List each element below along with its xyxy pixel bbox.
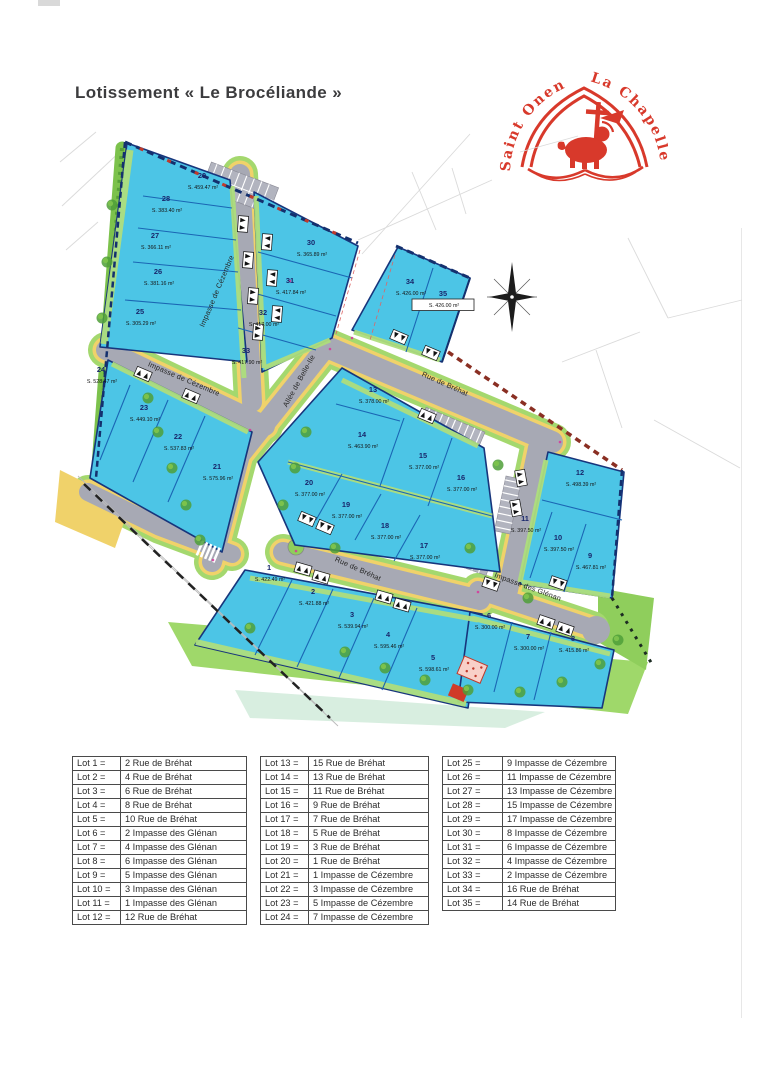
lot-address-cell: 4 Impasse des Glénan: [121, 841, 247, 855]
lot-address-cell: 7 Rue de Bréhat: [309, 813, 429, 827]
lot-number-cell: Lot 21 =: [261, 869, 309, 883]
lot-address-cell: 11 Rue de Bréhat: [309, 785, 429, 799]
svg-text:6: 6: [487, 611, 491, 620]
lot-address-cell: 2 Impasse de Cézembre: [503, 869, 616, 883]
svg-text:S. 467.81 m²: S. 467.81 m²: [576, 565, 607, 571]
svg-text:S. 381.16 m²: S. 381.16 m²: [144, 281, 175, 287]
lot-address-cell: 8 Rue de Bréhat: [121, 799, 247, 813]
svg-text:S. 539.94 m²: S. 539.94 m²: [338, 624, 369, 630]
lot-table-row: Lot 20 =1 Rue de Bréhat: [261, 855, 429, 869]
svg-text:S. 598.61 m²: S. 598.61 m²: [419, 667, 450, 673]
svg-text:S. 365.89 m²: S. 365.89 m²: [297, 252, 328, 258]
lot-table-row: Lot 24 =7 Impasse de Cézembre: [261, 911, 429, 925]
svg-text:34: 34: [406, 277, 415, 286]
svg-text:21: 21: [213, 462, 221, 471]
lot-table-row: Lot 11 =1 Impasse des Glénan: [73, 897, 247, 911]
page-title: Lotissement « Le Brocéliande »: [75, 83, 342, 103]
svg-text:S. 449.10 m²: S. 449.10 m²: [130, 417, 161, 423]
lot-address-table-3: Lot 25 =9 Impasse de CézembreLot 26 =11 …: [442, 756, 616, 911]
lot-address-cell: 6 Impasse de Cézembre: [503, 841, 616, 855]
lot-table-row: Lot 28 =15 Impasse de Cézembre: [443, 799, 616, 813]
svg-text:S. 426.00 m²: S. 426.00 m²: [396, 291, 427, 297]
lot-number-cell: Lot 33 =: [443, 869, 503, 883]
lot-address-cell: 15 Rue de Bréhat: [309, 757, 429, 771]
lot-table-row: Lot 29 =17 Impasse de Cézembre: [443, 813, 616, 827]
lot-table-row: Lot 35 =14 Rue de Bréhat: [443, 897, 616, 911]
lot-number-cell: Lot 26 =: [443, 771, 503, 785]
svg-text:28: 28: [162, 194, 170, 203]
svg-text:23: 23: [140, 403, 148, 412]
lot-table-row: Lot 7 =4 Impasse des Glénan: [73, 841, 247, 855]
lot-address-tables: Lot 1 =2 Rue de BréhatLot 2 =4 Rue de Br…: [72, 756, 616, 925]
svg-text:S. 397.50 m²: S. 397.50 m²: [511, 528, 542, 534]
svg-text:18: 18: [381, 521, 389, 530]
svg-text:S. 366.11 m²: S. 366.11 m²: [141, 245, 171, 251]
lot-number-cell: Lot 17 =: [261, 813, 309, 827]
lot-number-cell: Lot 23 =: [261, 897, 309, 911]
lot-table-row: Lot 21 =1 Impasse de Cézembre: [261, 869, 429, 883]
lot-number-cell: Lot 11 =: [73, 897, 121, 911]
svg-text:17: 17: [420, 541, 428, 550]
lot-number-cell: Lot 22 =: [261, 883, 309, 897]
lot-number-cell: Lot 24 =: [261, 911, 309, 925]
lot-address-cell: 3 Rue de Bréhat: [309, 841, 429, 855]
svg-text:11: 11: [521, 514, 529, 523]
svg-text:14: 14: [358, 430, 367, 439]
lot-number-cell: Lot 15 =: [261, 785, 309, 799]
lot-table-row: Lot 2 =4 Rue de Bréhat: [73, 771, 247, 785]
lot-address-cell: 5 Rue de Bréhat: [309, 827, 429, 841]
lot-address-cell: 2 Impasse des Glénan: [121, 827, 247, 841]
svg-text:S. 383.40 m²: S. 383.40 m²: [152, 208, 183, 214]
lot-table-row: Lot 32 =4 Impasse de Cézembre: [443, 855, 616, 869]
lot-address-cell: 2 Rue de Bréhat: [121, 757, 247, 771]
lot-number-cell: Lot 5 =: [73, 813, 121, 827]
lot-address-cell: 4 Rue de Bréhat: [121, 771, 247, 785]
lot-table-row: Lot 4 =8 Rue de Bréhat: [73, 799, 247, 813]
lot-number-cell: Lot 31 =: [443, 841, 503, 855]
lot-table-row: Lot 25 =9 Impasse de Cézembre: [443, 757, 616, 771]
svg-text:32: 32: [259, 308, 267, 317]
lot-table-row: Lot 23 =5 Impasse de Cézembre: [261, 897, 429, 911]
svg-text:19: 19: [342, 500, 350, 509]
svg-text:S. 537.83 m²: S. 537.83 m²: [164, 446, 195, 452]
lot-address-cell: 14 Rue de Bréhat: [503, 897, 616, 911]
svg-text:29: 29: [198, 171, 206, 180]
site-plan: Impasse de CézembreImpasse de CézembreAl…: [0, 116, 763, 750]
lot-number-cell: Lot 18 =: [261, 827, 309, 841]
svg-text:33: 33: [242, 346, 250, 355]
lot-number-cell: Lot 25 =: [443, 757, 503, 771]
svg-text:S. 378.00 m²: S. 378.00 m²: [359, 399, 390, 405]
lot-address-cell: 10 Rue de Bréhat: [121, 813, 247, 827]
svg-text:12: 12: [576, 468, 584, 477]
svg-text:27: 27: [151, 231, 159, 240]
lot-number-cell: Lot 6 =: [73, 827, 121, 841]
svg-text:S. 377.00 m²: S. 377.00 m²: [447, 487, 478, 493]
lot-table-row: Lot 15 =11 Rue de Bréhat: [261, 785, 429, 799]
svg-text:3: 3: [350, 610, 354, 619]
lot-address-cell: 11 Impasse de Cézembre: [503, 771, 616, 785]
scan-artifact: [38, 0, 60, 6]
lot-table-row: Lot 18 =5 Rue de Bréhat: [261, 827, 429, 841]
svg-text:S. 300.00 m²: S. 300.00 m²: [514, 646, 545, 652]
scanned-document-page: Lotissement « Le Brocéliande »: [0, 0, 763, 1080]
lot-number-cell: Lot 10 =: [73, 883, 121, 897]
lot-number-cell: Lot 4 =: [73, 799, 121, 813]
svg-text:13: 13: [369, 385, 377, 394]
svg-text:S. 377.00 m²: S. 377.00 m²: [410, 555, 441, 561]
svg-text:20: 20: [305, 478, 313, 487]
lot-address-cell: 16 Rue de Bréhat: [503, 883, 616, 897]
svg-text:S. 528.47 m²: S. 528.47 m²: [87, 379, 118, 385]
lot-table-row: Lot 17 =7 Rue de Bréhat: [261, 813, 429, 827]
svg-text:S. 377.00 m²: S. 377.00 m²: [409, 465, 440, 471]
svg-text:25: 25: [136, 307, 144, 316]
svg-text:S. 415.86 m²: S. 415.86 m²: [559, 648, 590, 654]
lot-address-cell: 4 Impasse de Cézembre: [503, 855, 616, 869]
svg-text:S. 426.00 m²: S. 426.00 m²: [429, 303, 460, 309]
lot-table-row: Lot 1 =2 Rue de Bréhat: [73, 757, 247, 771]
svg-text:S. 397.50 m²: S. 397.50 m²: [544, 547, 575, 553]
lot-number-cell: Lot 34 =: [443, 883, 503, 897]
compass-rose-icon: [487, 262, 537, 332]
lot-address-cell: 15 Impasse de Cézembre: [503, 799, 616, 813]
lot-table-row: Lot 6 =2 Impasse des Glénan: [73, 827, 247, 841]
lot-address-cell: 12 Rue de Bréhat: [121, 911, 247, 925]
lot-table-row: Lot 27 =13 Impasse de Cézembre: [443, 785, 616, 799]
svg-text:30: 30: [307, 238, 315, 247]
svg-text:S. 498.39 m²: S. 498.39 m²: [566, 482, 597, 488]
svg-text:1: 1: [267, 563, 271, 572]
svg-text:7: 7: [526, 632, 530, 641]
lot-address-cell: 1 Impasse des Glénan: [121, 897, 247, 911]
svg-text:8: 8: [571, 634, 575, 643]
lot-table-row: Lot 3 =6 Rue de Bréhat: [73, 785, 247, 799]
svg-text:S. 463.90 m²: S. 463.90 m²: [348, 444, 379, 450]
svg-text:22: 22: [174, 432, 182, 441]
lot-table-row: Lot 34 =16 Rue de Bréhat: [443, 883, 616, 897]
lot-address-cell: 1 Rue de Bréhat: [309, 855, 429, 869]
svg-text:S. 422.49 m²: S. 422.49 m²: [255, 577, 286, 583]
svg-text:S. 417.90 m²: S. 417.90 m²: [232, 360, 263, 366]
lot-number-cell: Lot 30 =: [443, 827, 503, 841]
lot-number-cell: Lot 28 =: [443, 799, 503, 813]
lot-number-cell: Lot 19 =: [261, 841, 309, 855]
lot-table-row: Lot 19 =3 Rue de Bréhat: [261, 841, 429, 855]
lot-address-cell: 6 Rue de Bréhat: [121, 785, 247, 799]
svg-text:S. 377.00 m²: S. 377.00 m²: [371, 535, 402, 541]
svg-text:24: 24: [97, 365, 106, 374]
lot-address-cell: 5 Impasse des Glénan: [121, 869, 247, 883]
svg-text:S. 377.00 m²: S. 377.00 m²: [295, 492, 326, 498]
svg-text:S. 575.96 m²: S. 575.96 m²: [203, 476, 234, 482]
lot-number-cell: Lot 14 =: [261, 771, 309, 785]
lot-number-cell: Lot 3 =: [73, 785, 121, 799]
lot-address-cell: 17 Impasse de Cézembre: [503, 813, 616, 827]
lot-address-cell: 9 Impasse de Cézembre: [503, 757, 616, 771]
lot-table-row: Lot 14 =13 Rue de Bréhat: [261, 771, 429, 785]
svg-text:S. 300.00 m²: S. 300.00 m²: [475, 625, 506, 631]
svg-text:15: 15: [419, 451, 427, 460]
lot-table-row: Lot 22 =3 Impasse de Cézembre: [261, 883, 429, 897]
lot-table-row: Lot 26 =11 Impasse de Cézembre: [443, 771, 616, 785]
svg-text:16: 16: [457, 473, 465, 482]
lot-number-cell: Lot 13 =: [261, 757, 309, 771]
svg-text:2: 2: [311, 587, 315, 596]
lot-number-cell: Lot 29 =: [443, 813, 503, 827]
lot-number-cell: Lot 16 =: [261, 799, 309, 813]
svg-text:31: 31: [286, 276, 294, 285]
lot-number-cell: Lot 35 =: [443, 897, 503, 911]
lot-address-table-2: Lot 13 =15 Rue de BréhatLot 14 =13 Rue d…: [260, 756, 429, 925]
lot-address-table-1: Lot 1 =2 Rue de BréhatLot 2 =4 Rue de Br…: [72, 756, 247, 925]
svg-text:26: 26: [154, 267, 162, 276]
lot-number-cell: Lot 7 =: [73, 841, 121, 855]
lot-number-cell: Lot 8 =: [73, 855, 121, 869]
svg-text:9: 9: [588, 551, 592, 560]
lot-table-row: Lot 9 =5 Impasse des Glénan: [73, 869, 247, 883]
svg-text:S. 377.00 m²: S. 377.00 m²: [332, 514, 363, 520]
svg-text:S. 417.84 m²: S. 417.84 m²: [276, 290, 307, 296]
svg-text:S. 417.00 m²: S. 417.00 m²: [249, 322, 280, 328]
lot-table-row: Lot 8 =6 Impasse des Glénan: [73, 855, 247, 869]
svg-text:S. 595.46 m²: S. 595.46 m²: [374, 644, 405, 650]
svg-text:10: 10: [554, 533, 562, 542]
svg-text:S. 459.47 m²: S. 459.47 m²: [188, 185, 219, 191]
lot-number-cell: Lot 2 =: [73, 771, 121, 785]
lot-address-cell: 8 Impasse de Cézembre: [503, 827, 616, 841]
lot-address-cell: 3 Impasse de Cézembre: [309, 883, 429, 897]
svg-text:S. 421.88 m²: S. 421.88 m²: [299, 601, 330, 607]
lot-address-cell: 5 Impasse de Cézembre: [309, 897, 429, 911]
lot-number-cell: Lot 20 =: [261, 855, 309, 869]
svg-text:5: 5: [431, 653, 435, 662]
lot-address-cell: 7 Impasse de Cézembre: [309, 911, 429, 925]
lot-table-row: Lot 33 =2 Impasse de Cézembre: [443, 869, 616, 883]
lot-table-row: Lot 30 =8 Impasse de Cézembre: [443, 827, 616, 841]
svg-text:S. 305.29 m²: S. 305.29 m²: [126, 321, 157, 327]
lot-address-cell: 1 Impasse de Cézembre: [309, 869, 429, 883]
lot-table-row: Lot 13 =15 Rue de Bréhat: [261, 757, 429, 771]
lot-number-cell: Lot 12 =: [73, 911, 121, 925]
lot-address-cell: 9 Rue de Bréhat: [309, 799, 429, 813]
lot-table-row: Lot 16 =9 Rue de Bréhat: [261, 799, 429, 813]
lot-table-row: Lot 12 =12 Rue de Bréhat: [73, 911, 247, 925]
lot-address-cell: 13 Impasse de Cézembre: [503, 785, 616, 799]
lot-address-cell: 6 Impasse des Glénan: [121, 855, 247, 869]
lot-table-row: Lot 5 =10 Rue de Bréhat: [73, 813, 247, 827]
lot-number-cell: Lot 32 =: [443, 855, 503, 869]
svg-text:35: 35: [439, 289, 447, 298]
lot-number-cell: Lot 1 =: [73, 757, 121, 771]
lot-address-cell: 13 Rue de Bréhat: [309, 771, 429, 785]
lot-number-cell: Lot 9 =: [73, 869, 121, 883]
lot-address-cell: 3 Impasse des Glénan: [121, 883, 247, 897]
lot-table-row: Lot 10 =3 Impasse des Glénan: [73, 883, 247, 897]
lot-table-row: Lot 31 =6 Impasse de Cézembre: [443, 841, 616, 855]
lot-number-cell: Lot 27 =: [443, 785, 503, 799]
